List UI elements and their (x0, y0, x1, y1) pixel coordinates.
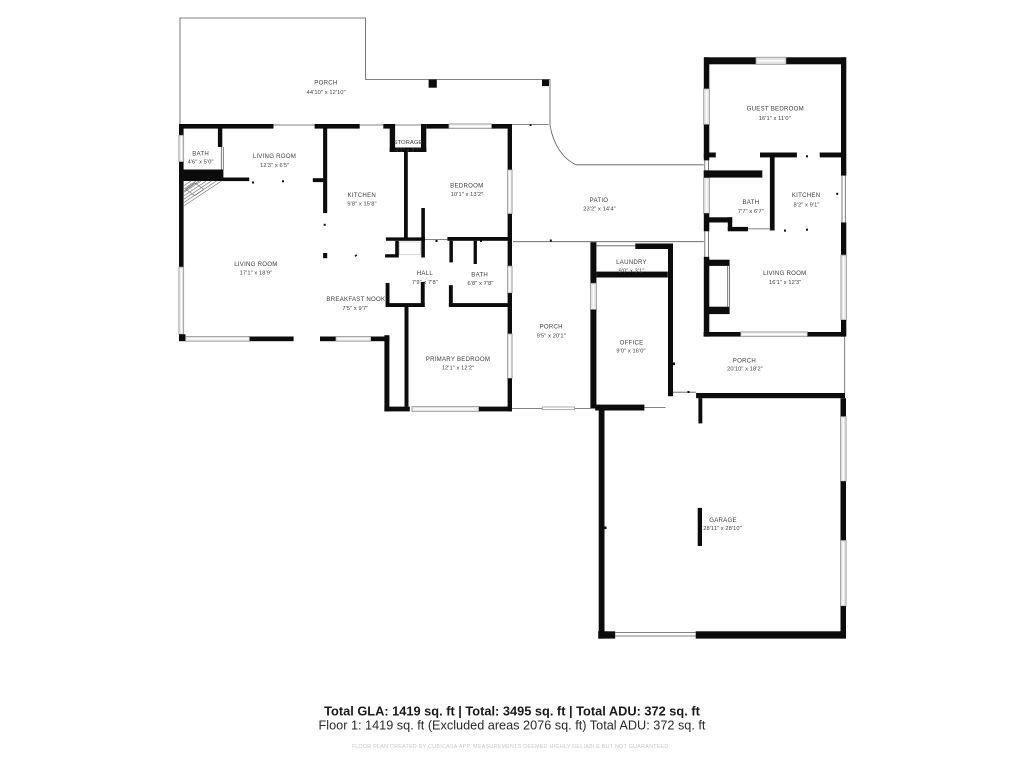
svg-text:PATIO: PATIO (590, 197, 609, 204)
svg-text:BATH: BATH (471, 271, 488, 278)
svg-text:HALL: HALL (417, 270, 434, 277)
svg-text:GUEST BEDROOM: GUEST BEDROOM (747, 106, 804, 113)
svg-text:PORCH: PORCH (733, 358, 756, 365)
svg-text:7'9" x 7'8": 7'9" x 7'8" (412, 280, 438, 286)
svg-text:PRIMARY BEDROOM: PRIMARY BEDROOM (426, 356, 490, 363)
svg-text:16'1" x 12'3": 16'1" x 12'3" (769, 280, 802, 286)
svg-text:LAUNDRY: LAUNDRY (616, 259, 647, 266)
svg-text:9'5" x 20'1": 9'5" x 20'1" (537, 334, 566, 340)
svg-text:BATH: BATH (742, 199, 759, 206)
svg-text:STORAGE: STORAGE (394, 140, 423, 146)
svg-text:12'1" x 12'2": 12'1" x 12'2" (442, 366, 475, 372)
svg-text:PORCH: PORCH (540, 324, 563, 331)
svg-text:7'5" x 9'7": 7'5" x 9'7" (342, 306, 368, 312)
svg-text:BATH: BATH (192, 150, 209, 157)
svg-text:Total GLA: 1419 sq. ft | Total: Total GLA: 1419 sq. ft | Total: 3495 sq.… (324, 704, 700, 719)
svg-text:KITCHEN: KITCHEN (348, 192, 377, 199)
svg-text:12'3" x 6'5": 12'3" x 6'5" (260, 163, 289, 169)
svg-text:9'0" x 3'1": 9'0" x 3'1" (619, 269, 645, 275)
svg-text:LIVING ROOM: LIVING ROOM (234, 261, 277, 268)
svg-text:9'0" x 16'0": 9'0" x 16'0" (616, 348, 645, 354)
svg-text:10'1" x 13'2": 10'1" x 13'2" (451, 192, 484, 198)
svg-text:GARAGE: GARAGE (709, 517, 737, 524)
svg-text:Floor 1: 1419 sq. ft (Excluded: Floor 1: 1419 sq. ft (Excluded areas 207… (319, 719, 706, 733)
svg-text:17'1" x 18'9": 17'1" x 18'9" (240, 271, 273, 277)
svg-text:7'7" x 6'7": 7'7" x 6'7" (738, 209, 764, 215)
svg-text:LIVING ROOM: LIVING ROOM (253, 153, 296, 160)
svg-text:28'11" x 28'10": 28'11" x 28'10" (703, 526, 742, 532)
svg-text:PORCH: PORCH (314, 79, 337, 86)
svg-text:8'2" x 9'1": 8'2" x 9'1" (794, 203, 820, 209)
svg-text:44'10" x 12'10": 44'10" x 12'10" (307, 90, 346, 96)
svg-text:BEDROOM: BEDROOM (450, 182, 483, 189)
svg-text:23'2" x 14'4": 23'2" x 14'4" (583, 206, 616, 212)
svg-text:OFFICE: OFFICE (620, 340, 644, 347)
svg-text:4'1" x 3'7": 4'1" x 3'7" (395, 148, 421, 154)
svg-text:9'8" x 15'8": 9'8" x 15'8" (347, 202, 376, 208)
svg-text:BREAKFAST NOOK: BREAKFAST NOOK (326, 296, 385, 303)
svg-text:FLOOR PLAN CREATED BY CUBICASA: FLOOR PLAN CREATED BY CUBICASA APP. MEAS… (352, 744, 671, 750)
svg-text:20'10" x 18'2": 20'10" x 18'2" (727, 367, 763, 373)
svg-text:6'8" x 7'8": 6'8" x 7'8" (468, 281, 494, 287)
svg-text:LIVING ROOM: LIVING ROOM (763, 270, 806, 277)
svg-text:4'6" x 5'0": 4'6" x 5'0" (188, 160, 214, 166)
svg-text:KITCHEN: KITCHEN (792, 192, 821, 199)
svg-text:16'1" x 11'0": 16'1" x 11'0" (759, 116, 791, 122)
